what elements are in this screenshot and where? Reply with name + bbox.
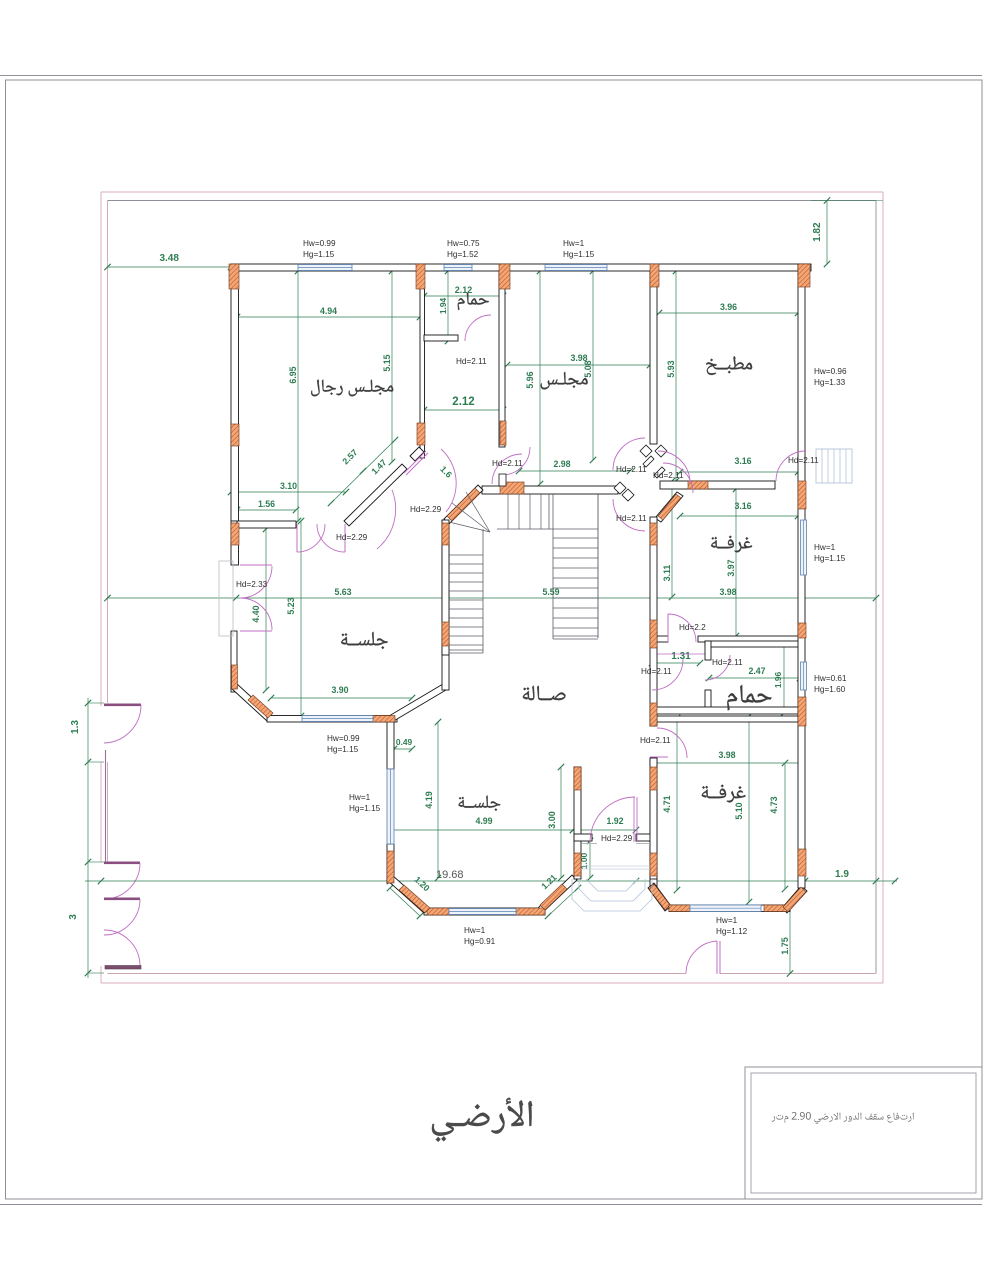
svg-text:Hd=2.11: Hd=2.11 [616, 465, 647, 474]
svg-text:Hw=1: Hw=1 [563, 239, 585, 248]
svg-text:Hd=2.11: Hd=2.11 [640, 736, 671, 745]
svg-text:Hw=0.99: Hw=0.99 [303, 239, 336, 248]
svg-text:Hg=0.91: Hg=0.91 [464, 937, 496, 946]
svg-text:4.94: 4.94 [320, 306, 337, 316]
svg-text:5.23: 5.23 [286, 597, 296, 614]
svg-text:Hg=1.33: Hg=1.33 [814, 378, 846, 387]
svg-text:5.15: 5.15 [382, 354, 392, 371]
svg-text:3.00: 3.00 [547, 811, 557, 829]
svg-text:5.63: 5.63 [334, 587, 351, 597]
svg-text:Hd=2.11: Hd=2.11 [492, 459, 523, 468]
svg-text:6.95: 6.95 [288, 366, 298, 383]
svg-text:5.59: 5.59 [542, 587, 559, 597]
svg-text:4.71: 4.71 [662, 795, 672, 812]
svg-text:3.96: 3.96 [720, 302, 737, 312]
svg-text:Hd=2.2: Hd=2.2 [679, 623, 706, 632]
svg-text:3.16: 3.16 [734, 501, 751, 511]
svg-text:4.40: 4.40 [251, 605, 261, 622]
svg-text:3: 3 [68, 914, 79, 920]
svg-text:2.47: 2.47 [748, 666, 765, 676]
svg-text:1.9: 1.9 [835, 869, 849, 880]
svg-text:3.98: 3.98 [718, 750, 735, 760]
svg-text:1.96: 1.96 [773, 672, 783, 689]
svg-text:1.3: 1.3 [70, 720, 81, 734]
svg-text:Hd=2.11: Hd=2.11 [616, 514, 647, 523]
svg-text:Hg=1.15: Hg=1.15 [303, 250, 335, 259]
svg-text:Hg=1.15: Hg=1.15 [563, 250, 595, 259]
svg-text:3.16: 3.16 [734, 456, 751, 466]
svg-text:1.94: 1.94 [438, 298, 448, 315]
svg-text:Hw=1: Hw=1 [814, 543, 836, 552]
svg-text:5.93: 5.93 [666, 360, 676, 377]
svg-text:1.92: 1.92 [606, 816, 623, 826]
svg-text:3.11: 3.11 [662, 565, 672, 582]
svg-text:Hg=1.60: Hg=1.60 [814, 685, 846, 694]
svg-text:2.12: 2.12 [455, 285, 473, 295]
svg-text:Hd=2.11: Hd=2.11 [641, 667, 672, 676]
svg-text:Hg=1.15: Hg=1.15 [327, 745, 359, 754]
svg-text:Hw=1: Hw=1 [464, 926, 486, 935]
svg-text:5.10: 5.10 [734, 802, 744, 819]
svg-text:Hd=2.11: Hd=2.11 [788, 456, 819, 465]
svg-text:0.49: 0.49 [396, 737, 413, 747]
svg-text:Hd=2.29: Hd=2.29 [336, 533, 368, 542]
svg-text:2.12: 2.12 [452, 396, 474, 408]
svg-text:Hg=1.52: Hg=1.52 [447, 250, 479, 259]
svg-text:3.97: 3.97 [726, 559, 736, 576]
svg-text:3.98: 3.98 [719, 587, 736, 597]
svg-text:3.90: 3.90 [331, 685, 348, 695]
svg-text:4.99: 4.99 [475, 816, 492, 826]
svg-text:Hd=2.29: Hd=2.29 [410, 505, 442, 514]
svg-text:Hw=0.75: Hw=0.75 [447, 239, 480, 248]
svg-text:3.10: 3.10 [280, 481, 297, 491]
svg-text:4.19: 4.19 [424, 791, 434, 809]
svg-text:Hd=2.11: Hd=2.11 [712, 658, 743, 667]
svg-text:Hd=2.11: Hd=2.11 [456, 357, 487, 366]
svg-text:2.98: 2.98 [553, 459, 570, 469]
svg-text:1.75: 1.75 [780, 937, 790, 955]
svg-text:Hw=1: Hw=1 [716, 916, 738, 925]
svg-text:5.08: 5.08 [583, 360, 593, 377]
svg-text:19.68: 19.68 [436, 869, 464, 881]
svg-text:Hg=1.15: Hg=1.15 [814, 554, 846, 563]
svg-text:Hw=1: Hw=1 [349, 793, 371, 802]
svg-text:Hw=0.96: Hw=0.96 [814, 367, 847, 376]
svg-text:1.31: 1.31 [671, 651, 691, 662]
svg-text:Hd=2.33: Hd=2.33 [236, 580, 268, 589]
svg-text:Hw=0.99: Hw=0.99 [327, 734, 360, 743]
svg-text:Hd=2.29: Hd=2.29 [601, 834, 633, 843]
svg-text:4.73: 4.73 [769, 796, 779, 813]
svg-text:Hg=1.12: Hg=1.12 [716, 927, 748, 936]
svg-text:1.82: 1.82 [812, 222, 823, 242]
svg-text:Hd=2.11: Hd=2.11 [653, 471, 684, 480]
svg-text:5.96: 5.96 [525, 371, 535, 388]
svg-text:Hw=0.61: Hw=0.61 [814, 674, 847, 683]
svg-text:1.56: 1.56 [258, 499, 275, 509]
svg-text:Hg=1.15: Hg=1.15 [349, 804, 381, 813]
svg-text:3.48: 3.48 [159, 253, 179, 264]
